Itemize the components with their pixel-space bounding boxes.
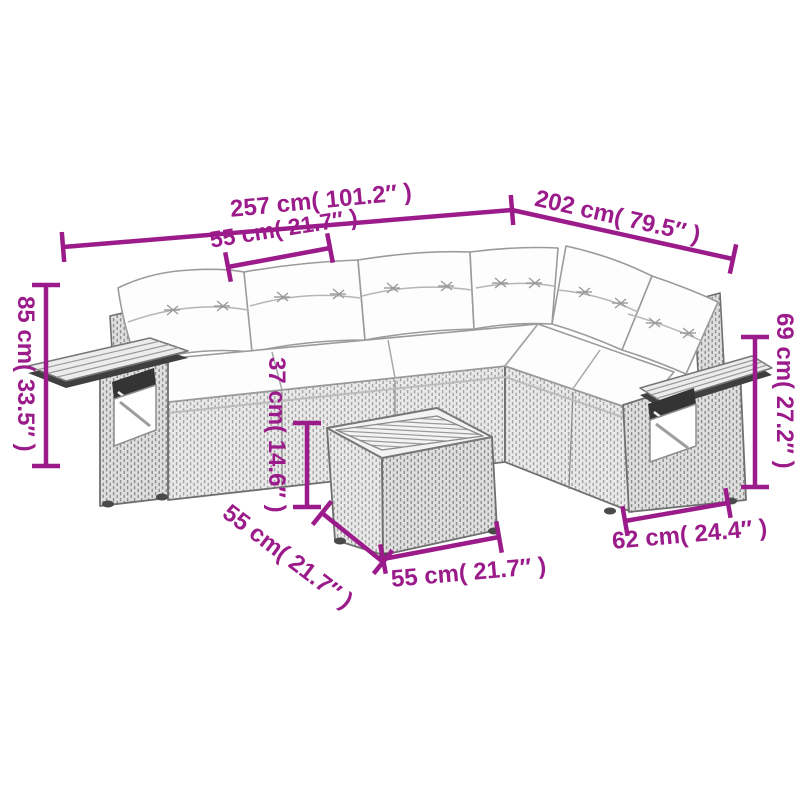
furniture-illustration <box>0 0 800 800</box>
dimension-diagram-canvas: 257 cm( 101.2″ ) 202 cm( 79.5″ ) 55 cm( … <box>0 0 800 800</box>
left-armrest <box>28 338 188 506</box>
coffee-table <box>320 408 500 560</box>
